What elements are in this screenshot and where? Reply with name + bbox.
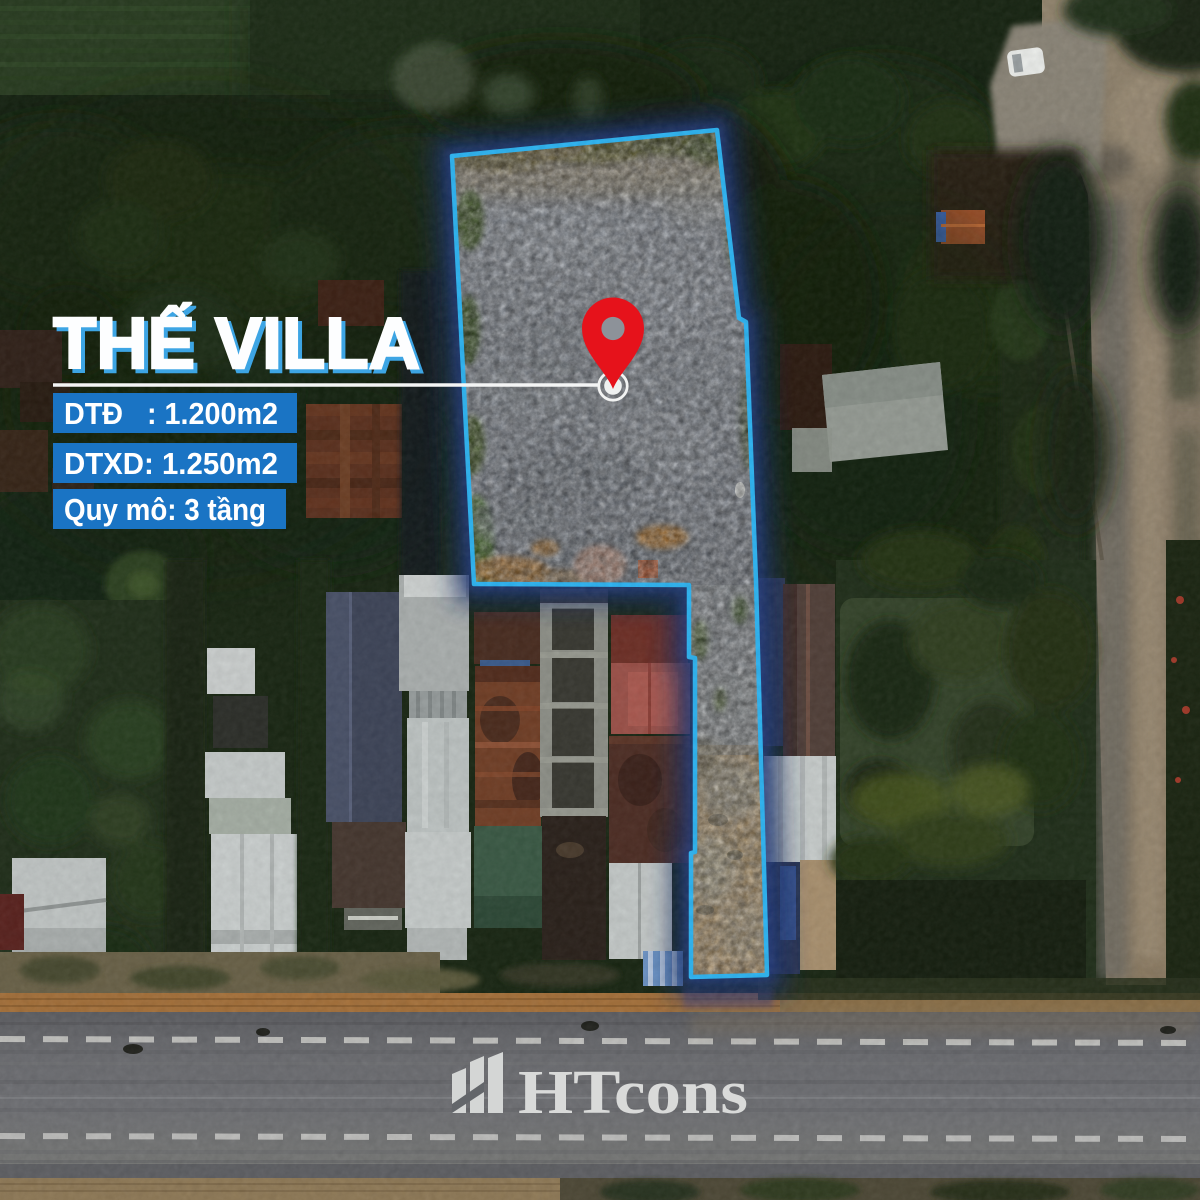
svg-text:DTXD: 1.250m2: DTXD: 1.250m2 xyxy=(64,446,278,481)
svg-text:DTĐ : 1.200m2: DTĐ : 1.200m2 xyxy=(64,396,278,431)
svg-text:Quy mô: 3 tầng: Quy mô: 3 tầng xyxy=(64,492,266,527)
svg-text:HTcons: HTcons xyxy=(518,1059,748,1127)
svg-text:THẾ VILLA: THẾ VILLA xyxy=(53,303,420,384)
